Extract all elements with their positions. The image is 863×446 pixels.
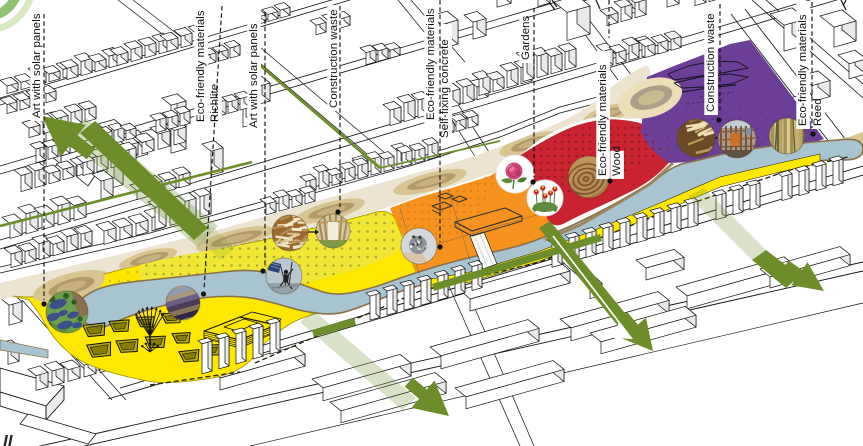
svg-text:Reed: Reed (812, 98, 824, 126)
svg-text:Art with solar panels: Art with solar panels (248, 23, 260, 128)
svg-text:Self-fixing concrete: Self-fixing concrete (439, 39, 451, 138)
svg-text:Gardens: Gardens (520, 15, 532, 60)
svg-text:ll: ll (3, 432, 14, 446)
svg-text:Construction waste: Construction waste (705, 13, 717, 112)
svg-text:Wood: Wood (611, 146, 623, 176)
svg-text:Art with solar panels: Art with solar panels (31, 13, 43, 118)
svg-text:Eco-friendly materials: Eco-friendly materials (597, 64, 609, 176)
svg-text:Construction waste: Construction waste (328, 9, 340, 108)
svg-text:Eco-friendly materials: Eco-friendly materials (425, 8, 437, 120)
svg-text:Eco-friendly materials: Eco-friendly materials (797, 14, 809, 126)
svg-text:Eco-friendly materials: Eco-friendly materials (195, 10, 207, 122)
